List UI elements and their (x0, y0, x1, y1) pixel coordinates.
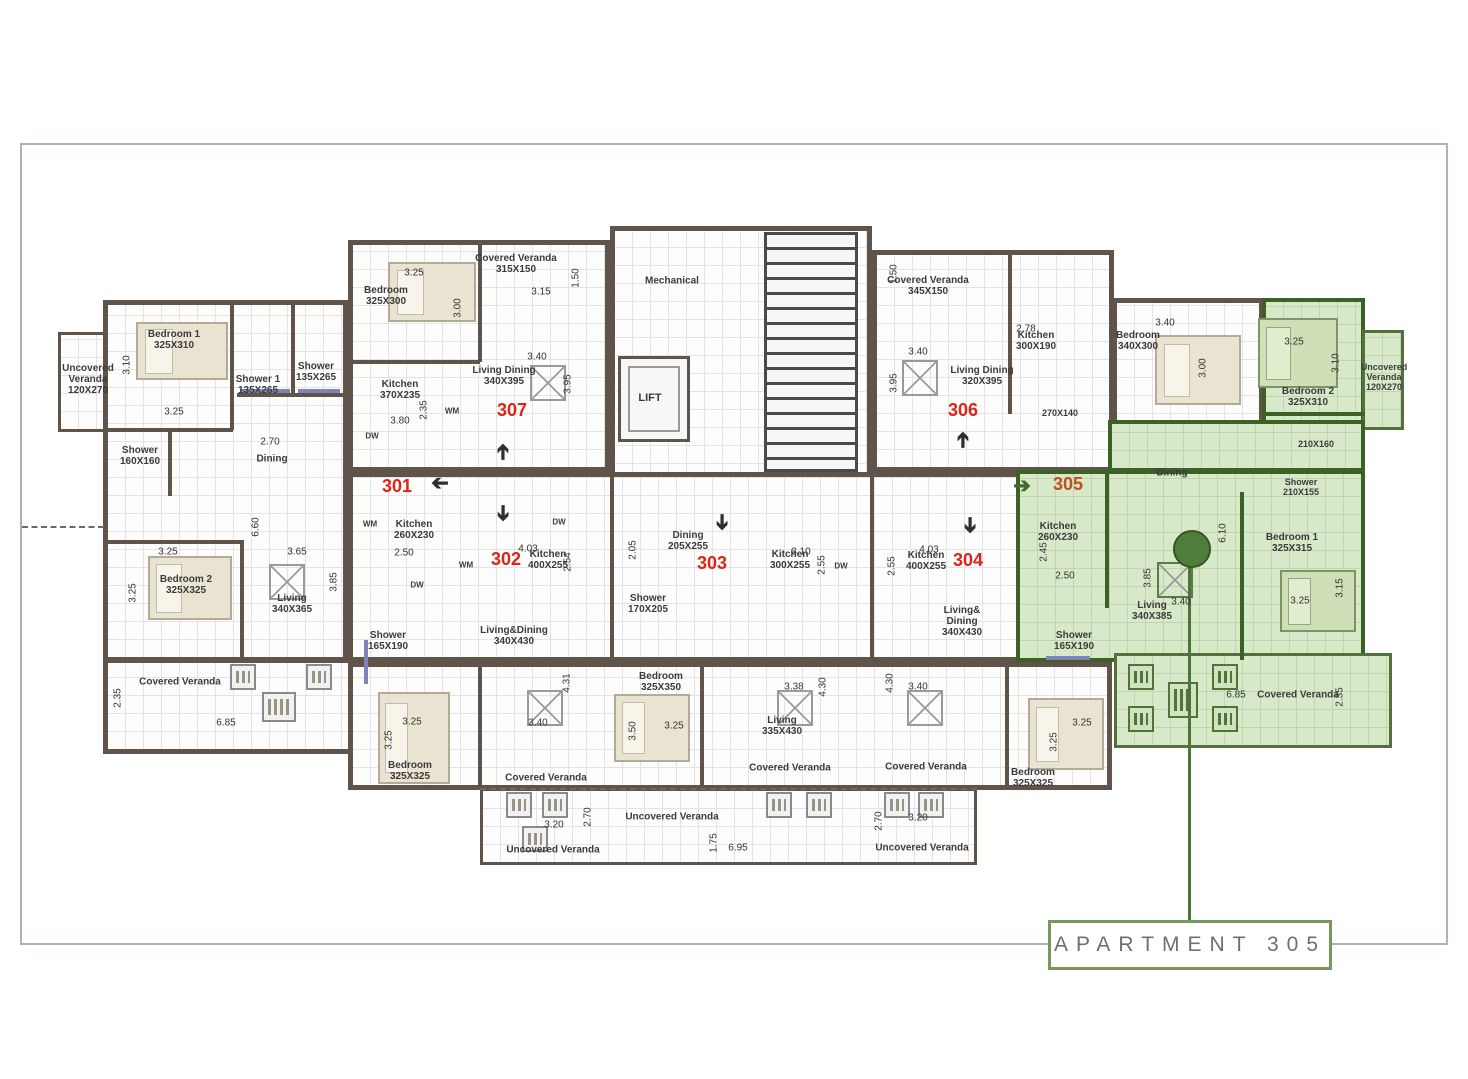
bed (1028, 698, 1104, 770)
coffee-table (777, 690, 813, 726)
veranda-chair (1212, 664, 1238, 690)
block-305-hall (1108, 420, 1365, 472)
wall (1005, 664, 1009, 788)
apartment-title: APARTMENT 305 (1054, 933, 1326, 957)
wall (230, 300, 234, 430)
block-mid-band (348, 472, 1112, 662)
veranda-chair (306, 664, 332, 690)
veranda-chair (230, 664, 256, 690)
bed (378, 692, 450, 784)
veranda-chair (506, 792, 532, 818)
block-305-uncovered-veranda (1362, 330, 1404, 430)
wall (291, 300, 295, 395)
veranda-table (262, 692, 296, 722)
coffee-table (527, 690, 563, 726)
wall (240, 540, 244, 660)
coffee-table (902, 360, 938, 396)
wall (610, 474, 614, 660)
entry-arrow-307: ➔ (493, 443, 514, 461)
wall (348, 360, 480, 364)
wall (168, 428, 172, 496)
bed (388, 262, 476, 322)
wall (478, 242, 482, 362)
entry-arrow-306: ➔ (953, 431, 974, 449)
leader-dot (1173, 530, 1211, 568)
leader-line (1188, 560, 1191, 922)
veranda-chair (1212, 706, 1238, 732)
bed (1280, 570, 1356, 632)
veranda-chair (542, 792, 568, 818)
entry-arrow-304: ➔ (960, 516, 981, 534)
veranda-table (522, 826, 548, 852)
veranda-table (1168, 682, 1198, 718)
veranda-chair (884, 792, 910, 818)
shower-wall-accent (364, 640, 368, 684)
wall (870, 474, 874, 660)
bed (1258, 318, 1338, 388)
shower-wall-accent (1046, 656, 1090, 660)
bed (1155, 335, 1241, 405)
wall-green (1262, 412, 1365, 416)
staircase (764, 232, 858, 472)
lift-shaft (618, 356, 690, 442)
wall (700, 664, 704, 788)
wall (478, 664, 482, 788)
dashed-line (480, 788, 977, 790)
wall-green (1105, 472, 1109, 608)
bed (148, 556, 232, 620)
veranda-chair (1128, 664, 1154, 690)
shower-wall-accent (240, 389, 290, 393)
veranda-chair (766, 792, 792, 818)
wall-green (1240, 492, 1244, 660)
bed (614, 694, 690, 762)
coffee-table (269, 564, 305, 600)
apartment-title-box: APARTMENT 305 (1048, 920, 1332, 970)
wall (1008, 252, 1012, 414)
block-bottom-band (348, 662, 1112, 790)
block-305-covered-veranda (1114, 653, 1392, 748)
block-uncovered-veranda-301 (58, 332, 106, 432)
veranda-chair (1128, 706, 1154, 732)
veranda-chair (806, 792, 832, 818)
entry-arrow-305: ➔ (1013, 476, 1031, 497)
wall (105, 540, 242, 544)
bed (136, 322, 228, 380)
dashed-line (22, 526, 104, 528)
coffee-table (907, 690, 943, 726)
shower-wall-accent (298, 389, 340, 393)
entry-arrow-302: ➔ (493, 504, 514, 522)
veranda-chair (918, 792, 944, 818)
entry-arrow-301: ➔ (431, 473, 449, 494)
floor-plan-page: APARTMENT 305 Uncovered Veranda 120X270B… (0, 0, 1468, 1079)
entry-arrow-303: ➔ (712, 513, 733, 531)
coffee-table (530, 365, 566, 401)
